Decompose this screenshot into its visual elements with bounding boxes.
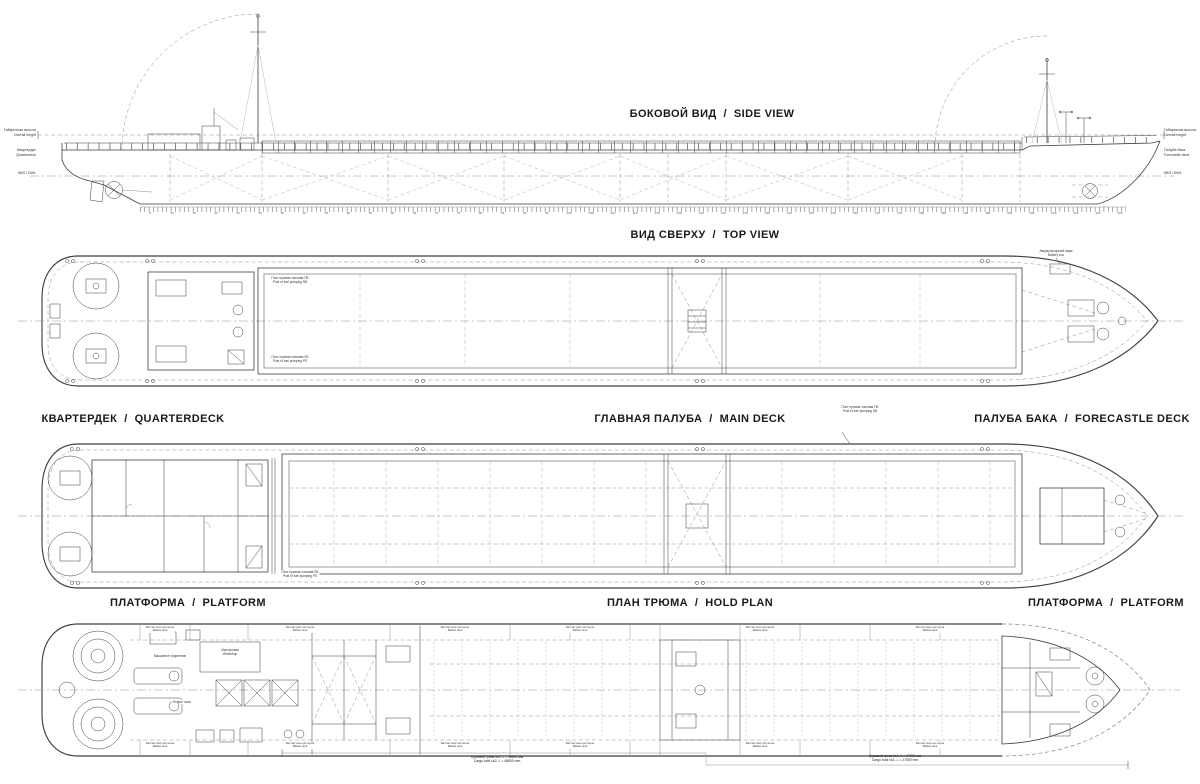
ballast-tank-label: Балластная цистернаBallast tank bbox=[565, 626, 595, 633]
ballast-tank-label: Балластная цистернаBallast tank bbox=[285, 626, 315, 633]
ballast-tank-label: Балластная цистернаBallast tank bbox=[440, 742, 470, 749]
forecastle-deck-label-right: Палуба бакаForecastle deck bbox=[1164, 148, 1189, 157]
ballast-tank-label: Балластная цистернаBallast tank bbox=[440, 626, 470, 633]
frame-number: 105 bbox=[588, 211, 593, 215]
fuel-station-sb-label-deckplan: Пост приема топлива ПБPost of fuel pumpi… bbox=[840, 405, 879, 413]
frame-number: 25 bbox=[237, 211, 240, 215]
frame-number: 195 bbox=[985, 211, 990, 215]
battery-box-label: Аккумуляторный ящикBattery box bbox=[1038, 249, 1073, 257]
ballast-tank-label: Балластная цистернаBallast tank bbox=[915, 626, 945, 633]
engine-room-label-ru: Машинное отделение bbox=[153, 654, 187, 658]
frame-number: 15 bbox=[192, 211, 195, 215]
main-deck-title: ГЛАВНАЯ ПАЛУБА / MAIN DECK bbox=[594, 413, 785, 425]
forecastle-deck-title: ПАЛУБА БАКА / FORECASTLE DECK bbox=[974, 413, 1190, 425]
frame-number: 60 bbox=[391, 211, 394, 215]
frame-number: 145 bbox=[765, 211, 770, 215]
cargo-hold-1-dimension: Грузовой трюм №1, L = 27800 ммCargo hold… bbox=[869, 754, 921, 763]
frame-number: 210 bbox=[1051, 211, 1056, 215]
frame-number: 70 bbox=[435, 211, 438, 215]
frame-number: 35 bbox=[281, 211, 284, 215]
ballast-tank-label: Балластная цистернаBallast tank bbox=[915, 742, 945, 749]
frame-number: 90 bbox=[523, 211, 526, 215]
top-view-title: ВИД СВЕРХУ / TOP VIEW bbox=[631, 229, 780, 241]
frame-number: 185 bbox=[941, 211, 946, 215]
frame-number: 200 bbox=[1007, 211, 1012, 215]
ballast-tank-label: Балластная цистернаBallast tank bbox=[745, 626, 775, 633]
fuel-station-ps-label-deckplan: Пост приема топлива ЛБPost of fuel pumpi… bbox=[281, 570, 320, 578]
frame-number: 55 bbox=[369, 211, 372, 215]
frame-number: 205 bbox=[1029, 211, 1034, 215]
deck-plan-drawing bbox=[0, 430, 1200, 598]
frame-number: 135 bbox=[721, 211, 726, 215]
top-view-drawing bbox=[0, 246, 1200, 396]
frame-number: 40 bbox=[303, 211, 306, 215]
engine-room-label-en: Engine room bbox=[172, 700, 192, 704]
frame-number: 115 bbox=[633, 211, 638, 215]
frame-number: 140 bbox=[743, 211, 748, 215]
frame-number: 160 bbox=[831, 211, 836, 215]
frame-number: 180 bbox=[919, 211, 924, 215]
ballast-tank-label: Балластная цистернаBallast tank bbox=[145, 626, 175, 633]
frame-number: 170 bbox=[875, 211, 880, 215]
frame-number: 155 bbox=[809, 211, 814, 215]
frame-number: 220 bbox=[1095, 211, 1100, 215]
overall-height-label-right: Габаритная высотаOverall height bbox=[1164, 128, 1196, 137]
overall-height-label-left: Габаритная высотаOverall height bbox=[0, 128, 36, 137]
frame-number: 130 bbox=[699, 211, 704, 215]
ballast-tank-label: Балластная цистернаBallast tank bbox=[745, 742, 775, 749]
frame-number: 95 bbox=[545, 211, 548, 215]
hold-plan-drawing bbox=[0, 612, 1200, 784]
side-view-title: БОКОВОЙ ВИД / SIDE VIEW bbox=[630, 108, 795, 120]
frame-number: 20 bbox=[214, 211, 217, 215]
frame-number: 65 bbox=[413, 211, 416, 215]
frame-number: 125 bbox=[677, 211, 682, 215]
fuel-station-sb-label-topview: Пост приема топлива ПБPost of fuel pumpi… bbox=[270, 276, 309, 284]
frame-number: 175 bbox=[897, 211, 902, 215]
frame-number: 120 bbox=[655, 211, 660, 215]
ballast-tank-label: Балластная цистернаBallast tank bbox=[565, 742, 595, 749]
frame-number: 80 bbox=[479, 211, 482, 215]
workshop-label: МастерскаяWorkshop bbox=[220, 648, 240, 656]
platform-left-title: ПЛАТФОРМА / PLATFORM bbox=[110, 597, 266, 609]
frame-number: 85 bbox=[501, 211, 504, 215]
quarterdeck-label-left: КвартердекQuarterdeck bbox=[0, 148, 36, 157]
quarterdeck-title: КВАРТЕРДЕК / QUARTERDECK bbox=[41, 413, 224, 425]
frame-number: 165 bbox=[853, 211, 858, 215]
waterline-label-left: КВЛ / DWL bbox=[0, 171, 36, 176]
fuel-station-ps-label-topview: Пост приема топлива ЛБPost of fuel pumpi… bbox=[271, 355, 310, 363]
frame-number: 190 bbox=[963, 211, 968, 215]
ballast-tank-label: Балластная цистернаBallast tank bbox=[145, 742, 175, 749]
frame-number: 10 bbox=[170, 211, 173, 215]
general-arrangement-drawing: БОКОВОЙ ВИД / SIDE VIEW ВИД СВЕРХУ / TOP… bbox=[0, 0, 1200, 784]
frame-number: 215 bbox=[1073, 211, 1078, 215]
frame-number: 50 bbox=[347, 211, 350, 215]
side-view-drawing bbox=[0, 0, 1200, 222]
frame-number: 45 bbox=[325, 211, 328, 215]
frame-number: 110 bbox=[611, 211, 616, 215]
frame-number: 30 bbox=[259, 211, 262, 215]
platform-right-title: ПЛАТФОРМА / PLATFORM bbox=[1028, 597, 1184, 609]
hold-plan-title: ПЛАН ТРЮМА / HOLD PLAN bbox=[607, 597, 773, 609]
cargo-hold-2-dimension: Грузовой трюм №2, L = 48800 ммCargo hold… bbox=[471, 755, 523, 764]
waterline-label-right: КВЛ / DWL bbox=[1164, 171, 1182, 176]
frame-number: 225 bbox=[1117, 211, 1122, 215]
frame-number: 5 bbox=[149, 211, 151, 215]
ballast-tank-label: Балластная цистернаBallast tank bbox=[285, 742, 315, 749]
frame-number: 75 bbox=[457, 211, 460, 215]
frame-number: 100 bbox=[566, 211, 571, 215]
frame-number: 150 bbox=[787, 211, 792, 215]
